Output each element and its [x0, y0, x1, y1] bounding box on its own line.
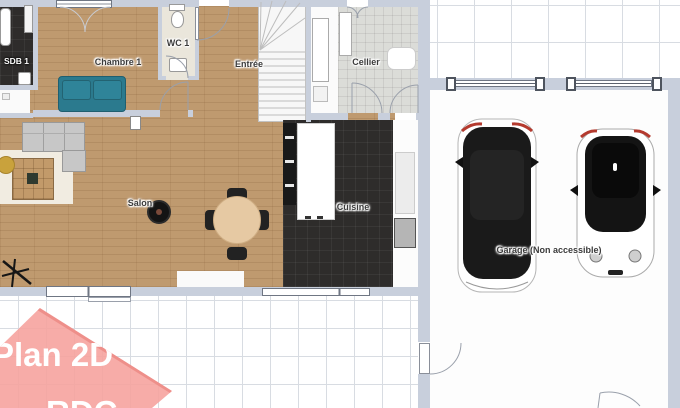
sofa-teal-cushion [93, 80, 122, 100]
wall-thermostat [130, 116, 141, 130]
wall [188, 76, 199, 80]
pouf-center [156, 209, 162, 215]
wardrobe[interactable] [312, 18, 329, 82]
door-opening [347, 0, 368, 7]
wall [158, 76, 166, 80]
bathroom-sink[interactable] [18, 72, 31, 85]
sofa-gray[interactable] [22, 122, 85, 152]
sofa-teal-cushion [62, 80, 91, 100]
room-label-sdb1: SDB 1 [0, 56, 33, 66]
window-frame [652, 77, 662, 91]
room-label-cuisine: Cuisine [325, 202, 381, 212]
window [46, 286, 131, 297]
room-label-chambre1: Chambre 1 [80, 57, 156, 67]
window-sill [88, 297, 131, 302]
door-leaf [195, 7, 199, 40]
room-label-salon: Salon [112, 198, 168, 208]
garage-side-door-leaf [419, 343, 430, 374]
shelf-slot [285, 184, 294, 187]
wall [33, 0, 38, 90]
stove[interactable] [394, 218, 416, 248]
wall [229, 0, 347, 7]
wall [378, 113, 390, 120]
sofa-gray-chaise[interactable] [62, 150, 86, 172]
kitchen-counter[interactable] [395, 152, 415, 214]
toilet[interactable] [171, 11, 184, 28]
shower[interactable] [24, 5, 33, 33]
window-frame [566, 77, 576, 91]
room-label-garage: Garage (Non accessible) [459, 245, 639, 255]
window [262, 288, 370, 296]
toilet-tank [169, 4, 185, 11]
dining-table[interactable] [213, 196, 261, 244]
shelf-slot [285, 160, 294, 163]
window-frame [535, 77, 545, 91]
room-label-cellier: Cellier [338, 57, 394, 67]
coffee-table-center [27, 173, 38, 184]
dining-chair[interactable] [227, 247, 247, 260]
cabinet[interactable] [313, 86, 328, 102]
wall [0, 85, 38, 90]
wc-sink[interactable] [169, 58, 187, 72]
wall [418, 374, 430, 408]
room-label-entree: Entrée [221, 59, 277, 69]
island-handle [305, 216, 311, 219]
window-frame [446, 77, 456, 91]
doormat [177, 271, 244, 287]
wall [306, 0, 311, 122]
wall [0, 113, 33, 118]
room-label-wc1: WC 1 [159, 38, 197, 48]
wall [668, 88, 680, 408]
window [575, 80, 652, 87]
window [56, 0, 112, 8]
watermark-subtitle: RDC [46, 394, 118, 408]
cabinet[interactable] [2, 93, 10, 100]
terrace-grid-top-right [428, 0, 680, 78]
appliance[interactable] [339, 12, 352, 56]
window [455, 80, 536, 87]
wall [306, 113, 348, 120]
shelf-slot [285, 136, 294, 139]
floor-plan: SDB 1 Chambre 1 WC 1 Entrée Cellier Salo… [0, 0, 680, 408]
island-handle [317, 216, 323, 219]
wall [188, 110, 193, 117]
bathtub[interactable] [0, 8, 11, 46]
